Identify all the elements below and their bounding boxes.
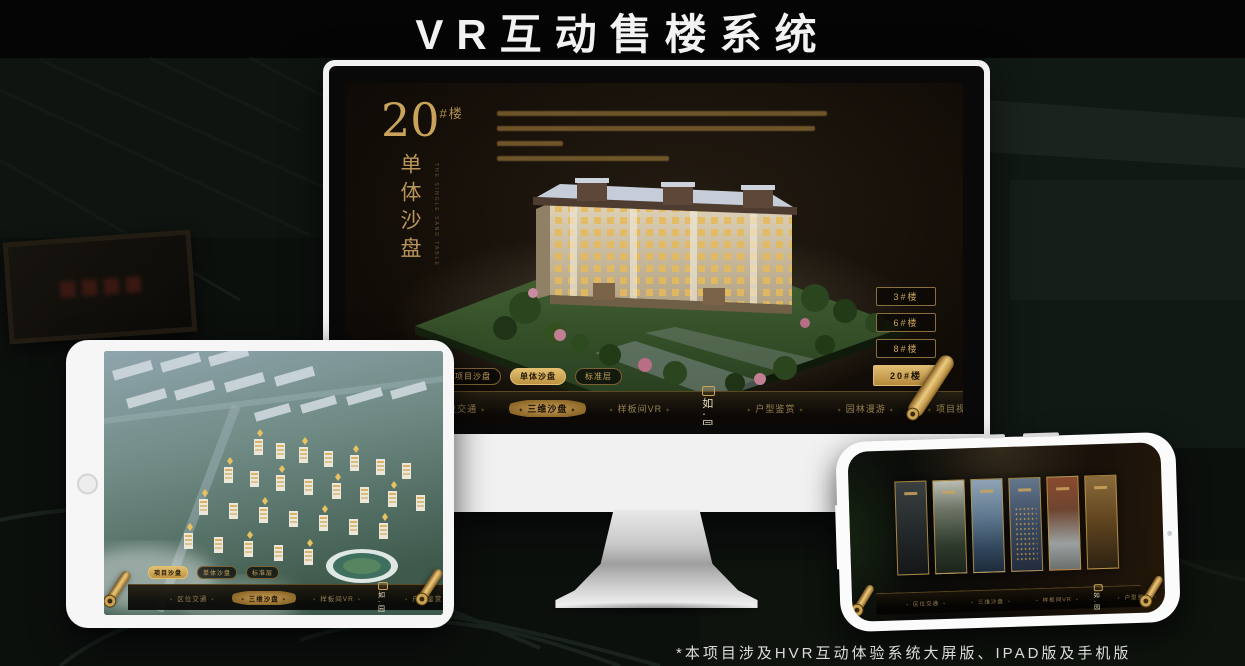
monitor-nav-item-showroom-vr[interactable]: 样板间VR (600, 400, 681, 417)
phone-nav-item-location[interactable]: 区位交通 (896, 596, 956, 610)
building-number-suffix: #楼 (440, 106, 464, 121)
phone-project-logo[interactable]: 如·园 (1093, 584, 1103, 611)
seal-icon (702, 386, 715, 396)
gallery-panel-interior[interactable] (932, 479, 967, 574)
tablet-tab-standard-floor[interactable]: 标准层 (246, 566, 279, 579)
monitor-project-logo[interactable]: 如·园 (702, 386, 715, 425)
monitor-nav-item-floorplans[interactable]: 户型鉴赏 (737, 400, 813, 417)
tablet-tab-single-sandtable[interactable]: 单体沙盘 (197, 566, 237, 579)
subtitle-english: THE SINGLE SAND TABLE (433, 163, 439, 283)
monitor-stand (549, 510, 764, 608)
tablet-bottom-nav: 区位交通 三维沙盘 样板间VR 如·园 户型鉴赏 园林漫游 项目视频 (128, 584, 443, 610)
floor-button-3[interactable]: 3#楼 (876, 287, 936, 306)
gallery-panel-autumn-garden[interactable] (1046, 476, 1081, 571)
phone-notch (835, 505, 850, 569)
tablet-nav-item-showroom-vr[interactable]: 样板间VR (303, 591, 371, 605)
phone-bottom-nav: 区位交通 三维沙盘 样板间VR 如·园 户型鉴赏 园林漫游 项目视频 (876, 585, 1142, 615)
seal-icon (1093, 584, 1102, 591)
unit-headline: 20#楼 单体沙盘 THE SINGLE SAND TABLE (381, 97, 464, 293)
phone-nav-item-floorplans[interactable]: 户型鉴赏 (1108, 590, 1166, 604)
gallery-panel-shelf[interactable] (1084, 475, 1119, 570)
background-award-plaque (3, 230, 198, 345)
footnote-text: *本项目涉及HVR互动体验系统大屏版、IPAD版及手机版 (676, 642, 1131, 663)
phone-nav-item-showroom-vr[interactable]: 样板间VR (1026, 592, 1089, 606)
phone-volume-button[interactable] (983, 434, 1005, 439)
stadium (326, 549, 398, 583)
tablet-home-button[interactable] (77, 474, 98, 495)
gallery-panel-building-dusk[interactable] (970, 478, 1005, 573)
tablet-device: 项目沙盘 单体沙盘 标准层 区位交通 三维沙盘 样板间VR 如·园 户型鉴赏 园… (66, 340, 454, 628)
tablet-view-tabs: 项目沙盘 单体沙盘 标准层 (148, 566, 279, 579)
gallery-panel-courtyard[interactable] (894, 481, 929, 576)
tablet-screen-ui: 项目沙盘 单体沙盘 标准层 区位交通 三维沙盘 样板间VR 如·园 户型鉴赏 园… (104, 351, 443, 615)
phone-screen-ui: 区位交通 三维沙盘 样板间VR 如·园 户型鉴赏 园林漫游 项目视频 (847, 442, 1165, 622)
phone-nav-item-3d-sandtable[interactable]: 三维沙盘 (961, 594, 1021, 608)
monitor-stand-shadow (537, 602, 777, 618)
scene-gallery (894, 475, 1119, 576)
subtitle-vertical: 单体沙盘 (395, 153, 425, 293)
tab-single-sandtable[interactable]: 单体沙盘 (510, 368, 566, 385)
phone-device: 区位交通 三维沙盘 样板间VR 如·园 户型鉴赏 园林漫游 项目视频 (835, 432, 1181, 633)
seal-icon (378, 582, 388, 590)
monitor-nav-item-3d-sandtable[interactable]: 三维沙盘 (509, 400, 585, 417)
phone-camera-dot (1167, 531, 1172, 536)
tablet-nav-item-3d-sandtable[interactable]: 三维沙盘 (232, 591, 297, 605)
monitor-view-tabs: 项目沙盘 单体沙盘 标准层 (445, 368, 622, 385)
poster-canvas: VR互动售楼系统 (0, 0, 1245, 666)
tablet-project-logo[interactable]: 如·园 (378, 582, 388, 613)
tab-standard-floor[interactable]: 标准层 (575, 368, 622, 385)
phone-volume-button[interactable] (1023, 432, 1059, 437)
tablet-nav-item-location[interactable]: 区位交通 (160, 591, 225, 605)
building-number: 20 (381, 93, 440, 147)
tablet-tab-project-sandtable[interactable]: 项目沙盘 (148, 566, 188, 579)
floor-selector: 3#楼 6#楼 8#楼 20#楼 (873, 287, 939, 386)
gallery-panel-building-night[interactable] (1008, 477, 1043, 572)
monitor-nav-item-garden-tour[interactable]: 园林漫游 (828, 400, 904, 417)
floor-button-8[interactable]: 8#楼 (876, 339, 936, 358)
floor-button-6[interactable]: 6#楼 (876, 313, 936, 332)
page-title: VR互动售楼系统 (0, 1, 1245, 62)
description-lines (497, 111, 842, 171)
